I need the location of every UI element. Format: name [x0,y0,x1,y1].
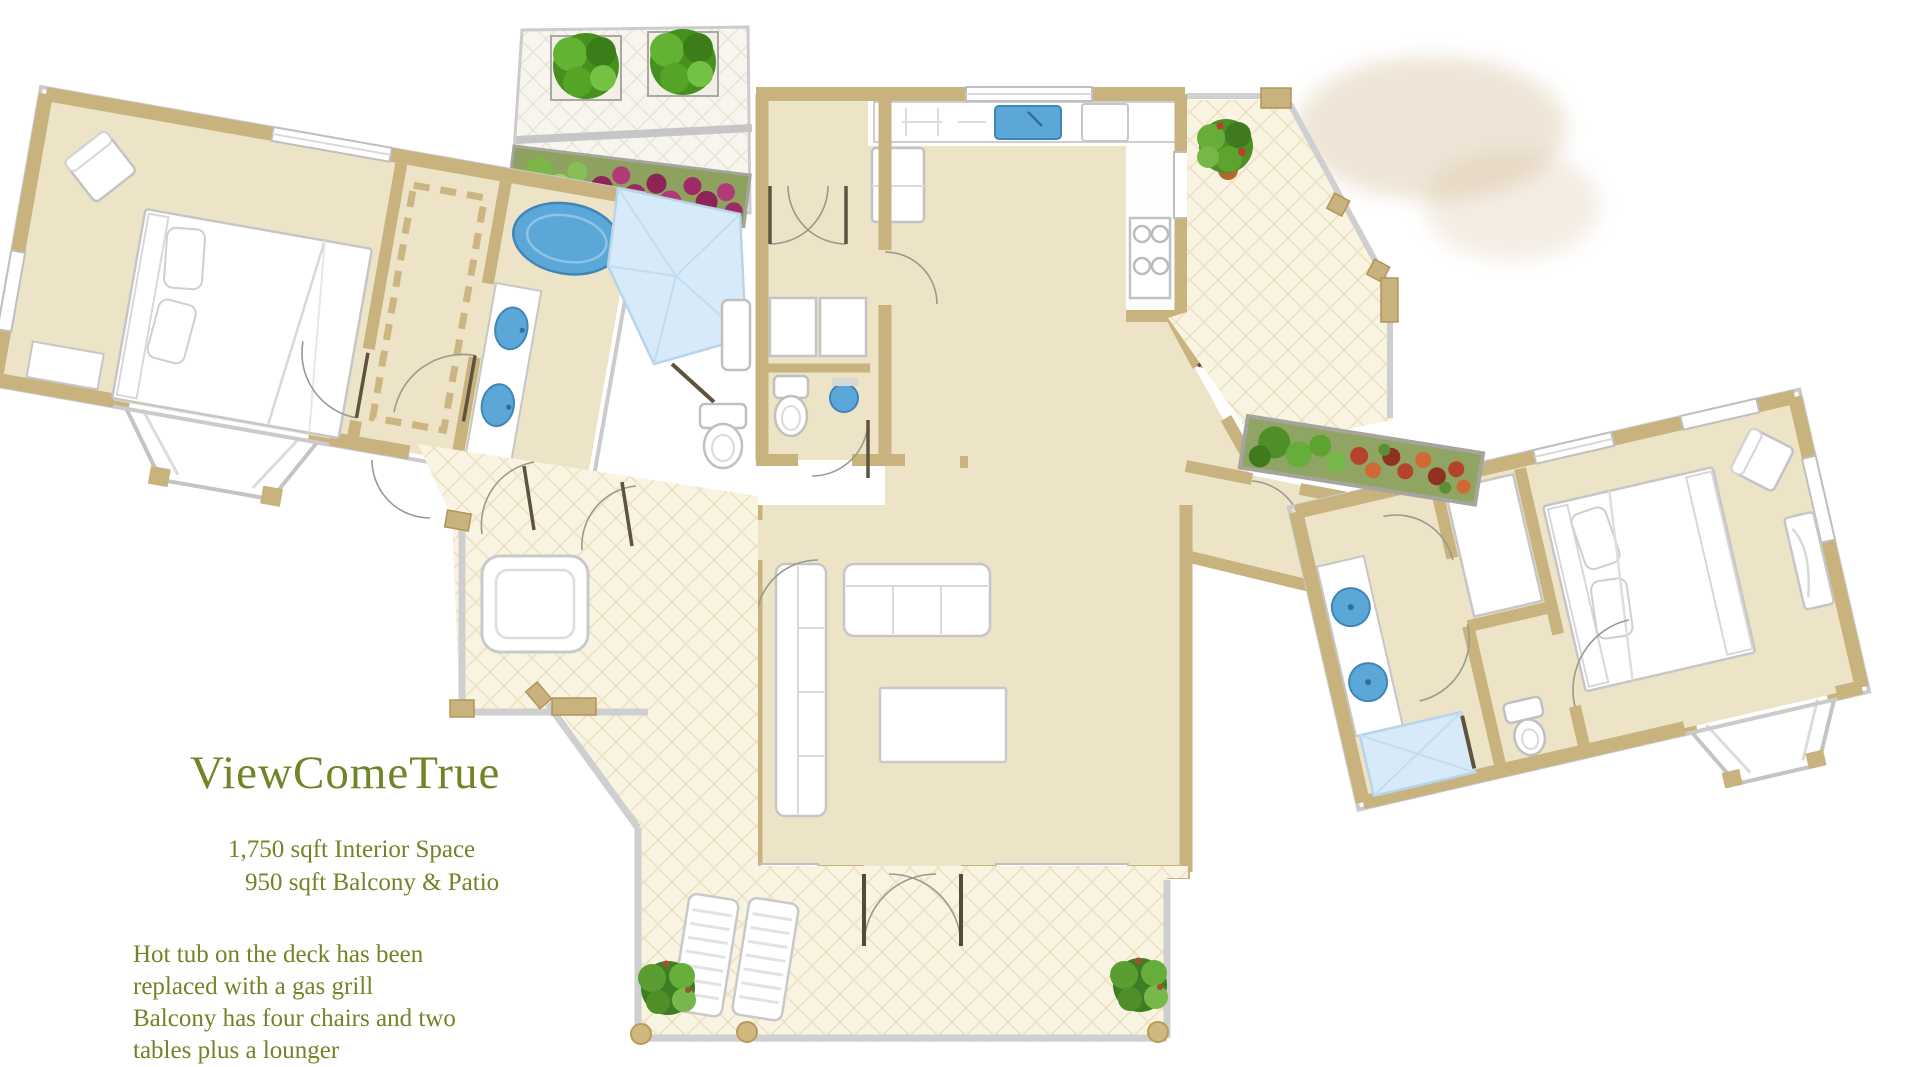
toilet [700,404,746,468]
sectional-sofa [776,564,826,816]
cabinet [722,300,750,370]
bed [112,209,372,438]
coffee-table [880,688,1006,762]
plan-stats: 1,750 sqft Interior Space 950 sqft Balco… [228,833,499,899]
plan-title: ViewComeTrue [190,746,500,800]
pillow [163,227,205,290]
toilet [774,376,808,436]
watercolor-smudge [1424,150,1600,260]
note-line: replaced with a gas grill [133,971,456,1003]
master-shower-wc [608,188,750,468]
cabinet [770,298,816,356]
powder-sink [830,384,858,412]
dishwasher [1082,104,1128,141]
plan-notes: Hot tub on the deck has been replaced wi… [133,939,456,1067]
sofa [844,564,990,636]
sink-counter [832,378,858,386]
shrub-planter [648,29,718,96]
gas-grill [482,556,588,652]
cabinet [820,298,866,356]
kitchen-sink [995,106,1061,139]
balcony-sqft: 950 sqft Balcony & Patio [245,866,499,899]
note-line: Balcony has four chairs and two [133,1003,456,1035]
floor-plan [0,0,1920,1059]
note-line: tables plus a lounger [133,1035,456,1067]
shrub-planter [551,33,621,100]
note-line: Hot tub on the deck has been [133,939,456,971]
upper-patio [1168,56,1600,448]
door-leaf [672,364,714,402]
floorplan-page: ViewComeTrue 1,750 sqft Interior Space 9… [0,0,1920,1059]
stove [1130,218,1170,298]
interior-sqft: 1,750 sqft Interior Space [228,833,499,866]
